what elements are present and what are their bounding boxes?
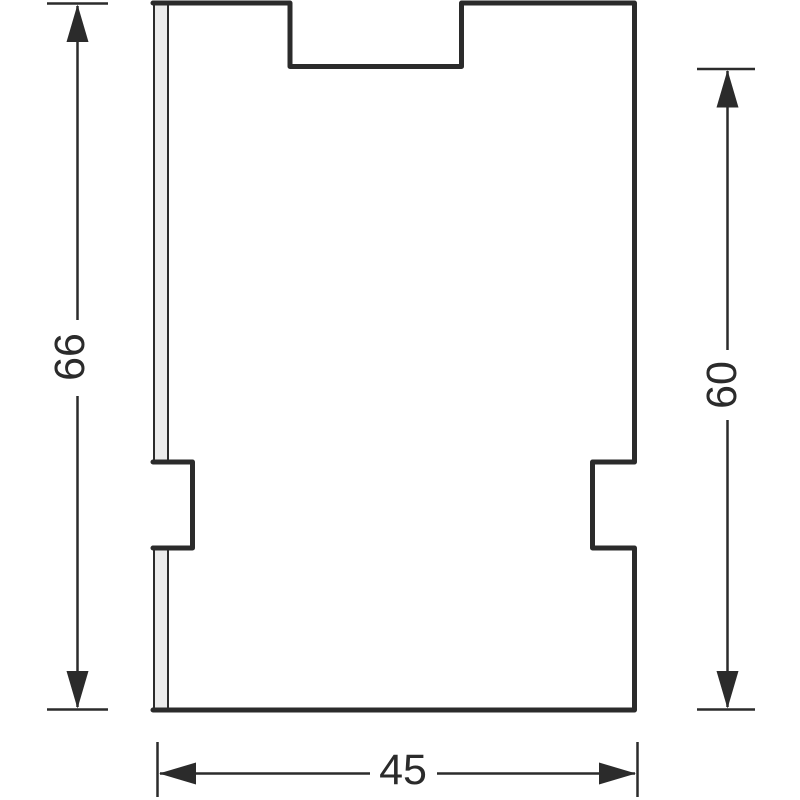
dimension-height-right: 60 <box>697 69 755 710</box>
dim-45-arrow-right-icon <box>599 763 636 785</box>
drawing-canvas: 66 60 45 <box>0 0 800 800</box>
technical-drawing: 66 60 45 <box>0 0 800 800</box>
dim-45-arrow-left-icon <box>159 763 196 785</box>
part-outline <box>153 3 635 710</box>
left-notch-outline <box>153 462 193 548</box>
dim-label-height-right: 60 <box>698 361 746 409</box>
dimension-width-bottom: 45 <box>158 742 638 797</box>
edge-strip-lower <box>154 548 168 710</box>
dim-label-height-total: 66 <box>46 333 94 381</box>
dim-60-arrow-down-icon <box>717 671 739 709</box>
dimension-height-total: 66 <box>46 4 108 710</box>
dim-label-width-bottom: 45 <box>379 746 427 794</box>
dim-66-arrow-up-icon <box>67 5 89 43</box>
dim-60-arrow-up-icon <box>717 70 739 108</box>
dim-66-arrow-down-icon <box>67 671 89 709</box>
edge-strip-upper <box>154 3 168 462</box>
edge-strip <box>154 3 168 710</box>
